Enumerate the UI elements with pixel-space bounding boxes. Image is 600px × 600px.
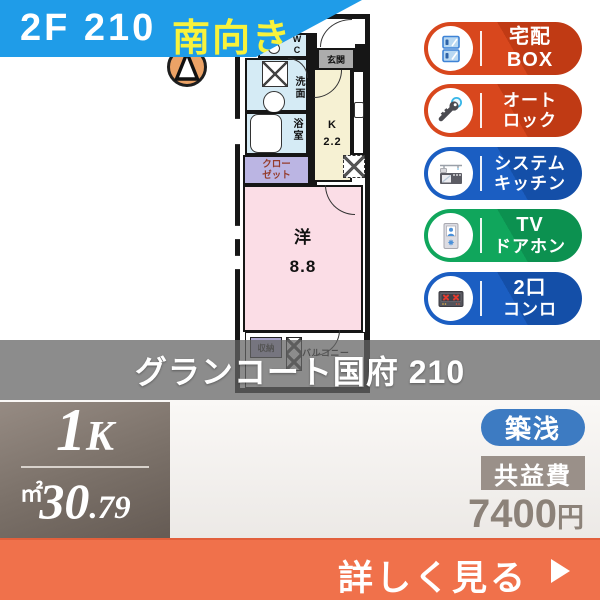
feature-icon-circle: [428, 88, 473, 133]
age-badge: 築浅: [481, 409, 585, 446]
cta-button[interactable]: 詳しく見る: [0, 538, 600, 600]
feature-icon-circle: [428, 276, 473, 321]
feature-badge-system-kitchen: システム キッチン: [424, 147, 582, 200]
building-title: グランコート国府 210: [135, 347, 465, 393]
feature-label: 2口 コンロ: [484, 272, 576, 325]
summary-divider: [21, 466, 149, 468]
bathtub-icon: [250, 114, 282, 153]
system-kitchen-icon: [436, 159, 466, 189]
arrow-right-icon: [551, 559, 570, 583]
washroom-label: 洗面: [291, 76, 306, 100]
feature-icon-circle: [428, 26, 473, 71]
floorplan: WC 洗面 浴室 クローゼット K2.2 玄関 洋8.8: [235, 14, 370, 393]
delivery-box-icon: [436, 34, 466, 64]
feature-separator: [480, 218, 482, 253]
room-entrance: 玄関: [317, 48, 355, 70]
key-icon: [436, 96, 466, 126]
feature-separator: [480, 93, 482, 128]
fee-value: 7400円: [452, 492, 600, 540]
kitchen-sink-icon: [354, 102, 364, 118]
bathroom-label: 浴室: [289, 118, 304, 142]
unit-label: 2F 210: [20, 7, 156, 50]
summary-box: 1K 30.79㎡: [0, 402, 170, 538]
window-gap: [235, 225, 240, 240]
wc-label: WC: [292, 34, 302, 56]
kitchen-label: K2.2: [313, 117, 352, 150]
area-value: 30.79㎡: [0, 474, 170, 529]
window-gap: [235, 255, 240, 270]
cta-label: 詳しく見る: [338, 550, 528, 600]
feature-label: TV ドアホン: [484, 209, 576, 262]
feature-label: オート ロック: [484, 84, 576, 137]
feature-separator: [480, 31, 482, 66]
window-gap: [235, 118, 240, 145]
feature-separator: [480, 281, 482, 316]
listing-card: WC 洗面 浴室 クローゼット K2.2 玄関 洋8.8: [0, 0, 600, 600]
feature-badge-delivery-box: 宅配 BOX: [424, 22, 582, 75]
fee-label: 共益費: [481, 456, 585, 490]
washing-machine-icon: [262, 61, 288, 87]
feature-icon-circle: [428, 151, 473, 196]
tv-doorphone-icon: [436, 221, 466, 251]
pipe-shaft: [343, 155, 365, 178]
feature-label: 宅配 BOX: [484, 22, 576, 75]
closet-label: クローゼット: [262, 159, 291, 182]
feature-badge-auto-lock: オート ロック: [424, 84, 582, 137]
feature-badge-two-burner-stove: 2口 コンロ: [424, 272, 582, 325]
layout-value: 1K: [0, 400, 170, 460]
room-closet: クローゼット: [243, 155, 310, 185]
wall: [355, 44, 365, 72]
entrance-label: 玄関: [327, 53, 345, 66]
feature-icon-circle: [428, 213, 473, 258]
sink-icon: [263, 91, 285, 113]
feature-badge-tv-doorphone: TV ドアホン: [424, 209, 582, 262]
entrance-door-arc: [320, 19, 352, 47]
two-burner-stove-icon: [436, 284, 466, 314]
feature-separator: [480, 156, 482, 191]
bottom-info: 1K 30.79㎡ 4.5万円 築浅 共益費 7400円: [0, 400, 600, 538]
main-room-label: 洋8.8: [243, 224, 363, 282]
feature-label: システム キッチン: [484, 147, 576, 200]
title-band: グランコート国府 210: [0, 340, 600, 400]
